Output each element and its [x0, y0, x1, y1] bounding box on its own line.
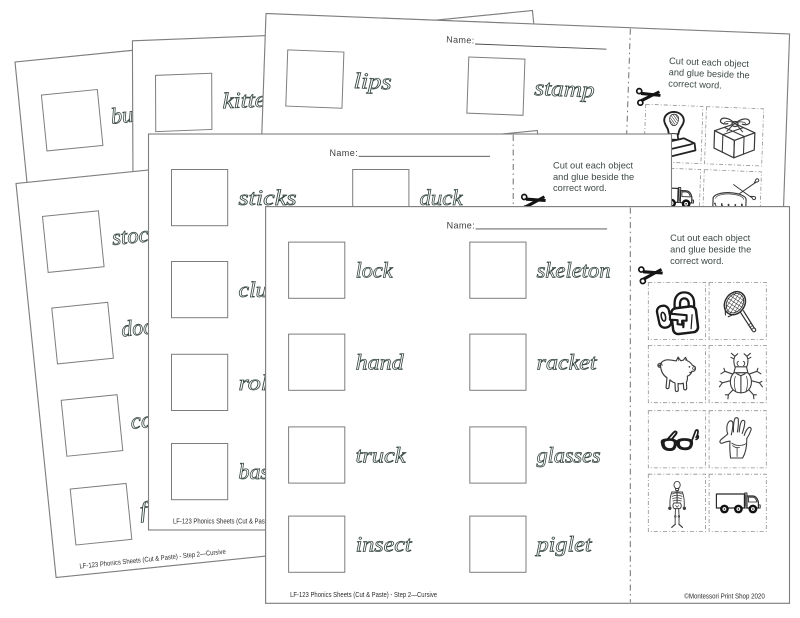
svg-text:glasses: glasses: [537, 442, 601, 467]
svg-text:stamp: stamp: [534, 75, 595, 102]
svg-text:lips: lips: [353, 68, 392, 94]
svg-text:racket: racket: [537, 350, 598, 375]
svg-text:correct word.: correct word.: [553, 183, 607, 193]
svg-text:LF-123 Phonics Sheets (Cut &: LF-123 Phonics Sheets (Cut & Paste) - St…: [290, 592, 437, 599]
svg-text:truck: truck: [356, 442, 407, 467]
svg-text:piglet: piglet: [534, 532, 592, 557]
svg-text:Name:: Name:: [447, 220, 476, 230]
svg-text:and glue beside the: and glue beside the: [670, 245, 751, 255]
svg-text:Name:: Name:: [330, 148, 359, 158]
svg-text:©Montessori Print Shop 2020: ©Montessori Print Shop 2020: [684, 591, 765, 600]
svg-text:Cut out each object: Cut out each object: [670, 233, 751, 243]
svg-text:insect: insect: [356, 532, 413, 557]
svg-text:skeleton: skeleton: [537, 258, 611, 283]
svg-text:lock: lock: [356, 258, 394, 283]
svg-text:Name:: Name:: [446, 34, 475, 45]
svg-text:hand: hand: [356, 350, 405, 375]
svg-text:Cut out each object: Cut out each object: [553, 161, 634, 171]
svg-text:correct word.: correct word.: [670, 256, 724, 266]
svg-text:and glue beside the: and glue beside the: [553, 172, 634, 182]
svg-text:correct word.: correct word.: [668, 78, 722, 90]
